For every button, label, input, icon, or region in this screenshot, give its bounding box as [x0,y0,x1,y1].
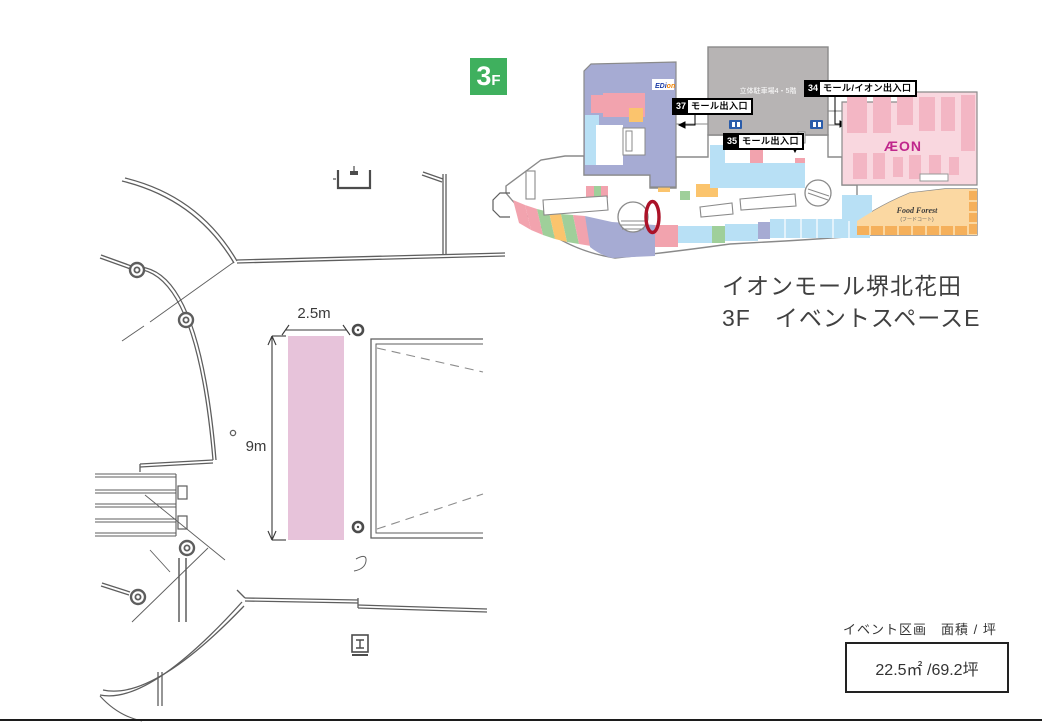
svg-text:EDion: EDion [655,83,675,90]
floor-plan: 2.5m 9m [90,160,510,722]
floor-badge-number: 3 [476,63,491,90]
food-court-name: Food Forest [896,206,938,215]
food-court: Food Forest (フードコート) [857,189,977,235]
floor-badge-suffix: F [491,73,500,88]
page: 3 F [0,0,1042,722]
entrance-label-35: 35 モール出入口 [723,133,804,150]
equipment-symbol-bottom [352,635,368,655]
width-dimension-label: 2.5m [297,305,330,322]
food-court-subtitle: (フードコート) [900,217,934,223]
aeon-building: ÆON [842,92,977,185]
location-title-line2: 3F イベントスペースE [722,302,980,334]
entrance-number: 35 [725,135,739,148]
edion-building: EDion [584,62,676,187]
entrance-number: 34 [806,82,820,95]
mall-overview-map: EDion 立体駐車場4・5階 [505,45,1040,260]
entrance-text: モール出入口 [739,135,802,148]
entrance-text: モール出入口 [688,100,751,113]
entrance-number: 37 [674,100,688,113]
ring-columns [130,263,236,604]
bolt-columns [353,325,363,532]
floor-plan-svg: 2.5m 9m [90,160,510,722]
area-info-heading: イベント区画 面積 / 坪 [843,619,997,638]
aeon-logo: ÆON [884,138,922,154]
entrance-label-37: 37 モール出入口 [672,98,753,115]
entrance-label-34: 34 モール/イオン出入口 [804,80,917,97]
location-title: イオンモール堺北花田 3F イベントスペースE [722,270,980,334]
mall-map-svg: EDion 立体駐車場4・5階 [505,45,1040,260]
bottom-rule [0,719,1042,721]
area-info-box: 22.5㎡ /69.2坪 [845,642,1009,693]
height-dimension-label: 9m [246,438,267,455]
location-title-line1: イオンモール堺北花田 [722,270,980,302]
area-info-value: 22.5㎡ /69.2坪 [875,656,978,680]
event-space-area [288,336,344,540]
entrance-text: モール/イオン出入口 [820,82,915,95]
floor-badge: 3 F [470,58,507,95]
equipment-symbol-top [333,166,370,188]
parking-label: 立体駐車場4・5階 [740,86,797,95]
